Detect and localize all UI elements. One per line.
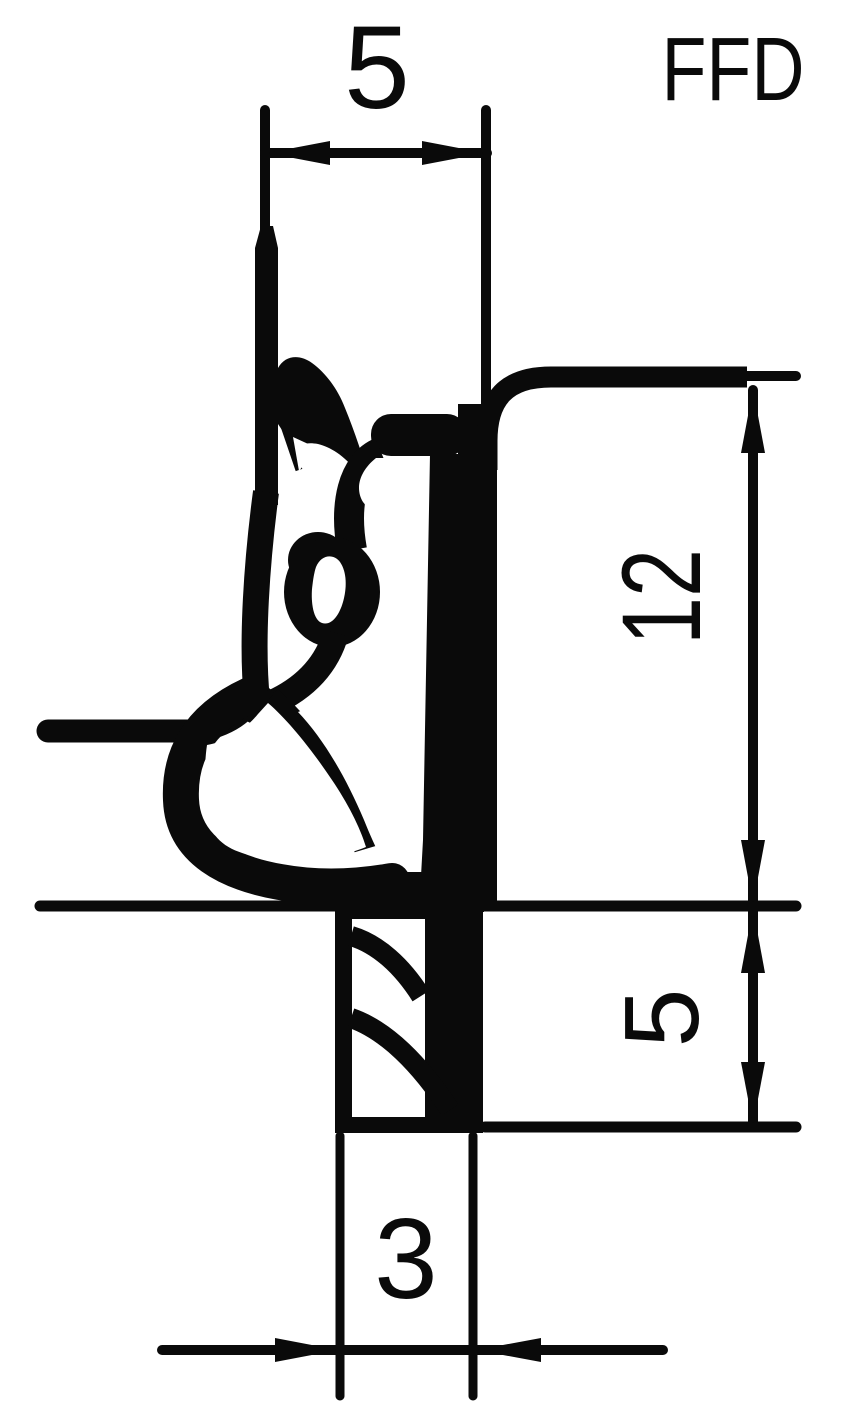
ffd-profile-drawing: 5 FFD 12 5 3 [0, 0, 841, 1417]
profile-corner-arm [487, 377, 747, 470]
arrow-top-left [267, 141, 330, 165]
void-foot-right-clearance [484, 911, 540, 1123]
arrow-height5-down [741, 1062, 765, 1125]
arrow-height12-down [741, 840, 765, 904]
profile-web [255, 492, 266, 700]
dim-label-bottom-width: 3 [374, 1196, 437, 1323]
profile-stem [419, 454, 497, 912]
dim-label-lower-height: 5 [603, 989, 721, 1048]
drawing-page: 5 FFD 12 5 3 [0, 0, 841, 1417]
profile-top-fin [255, 226, 278, 505]
dim-label-inner-height: 12 [599, 549, 724, 645]
arrow-bottom-left [275, 1338, 338, 1362]
part-code-label: FFD [662, 20, 805, 120]
arrow-top-right [422, 141, 485, 165]
dim-label-top-width: 5 [344, 2, 410, 134]
arrow-height12-up [741, 389, 765, 453]
profile-step-bar [371, 414, 467, 456]
arrow-height5-up [741, 908, 765, 973]
arrow-bottom-right [476, 1338, 541, 1362]
